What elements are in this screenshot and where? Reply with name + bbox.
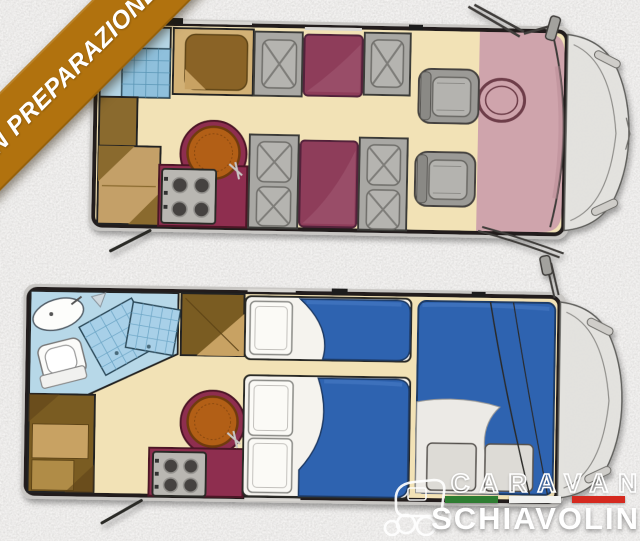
sofa-cabinet-bottom-left — [97, 146, 160, 225]
brand-schiavolin: SCHIAVOLIN — [420, 501, 640, 537]
wing-mirror-top — [539, 255, 559, 298]
cab-area — [476, 32, 565, 233]
overhead-cabinet-night — [181, 293, 245, 356]
shower-panel-2 — [125, 302, 180, 356]
hob — [161, 169, 216, 224]
dealer-logo: CARAVAN SCHIAVOLIN — [382, 468, 638, 540]
brand-caravan: CARAVAN — [449, 468, 640, 499]
entry-door-line — [102, 500, 141, 524]
cab-seat-driver — [418, 69, 479, 124]
vehicle-front — [564, 35, 632, 232]
pillow — [248, 380, 293, 436]
wardrobe — [27, 394, 95, 493]
dinette-seat-bottom-right — [358, 138, 408, 231]
cabinet-left — [99, 97, 138, 148]
drop-down-bed — [415, 301, 555, 495]
entry-door-line — [111, 230, 150, 252]
dinette-seat-top-right — [364, 33, 411, 96]
pillow — [250, 301, 293, 355]
pillow — [247, 438, 292, 493]
hob — [152, 452, 206, 497]
dinette-seat-top-left — [254, 32, 303, 97]
single-bed — [245, 296, 412, 362]
dinette-seat-bottom-left — [248, 134, 299, 228]
floorplan-day — [88, 0, 633, 261]
cab-seat-passenger — [415, 152, 476, 207]
listing-image: IN PREPARAZIONE CARAVAN SCHIAVOLIN — [0, 0, 640, 541]
overhead-cabinet-day — [173, 28, 254, 96]
